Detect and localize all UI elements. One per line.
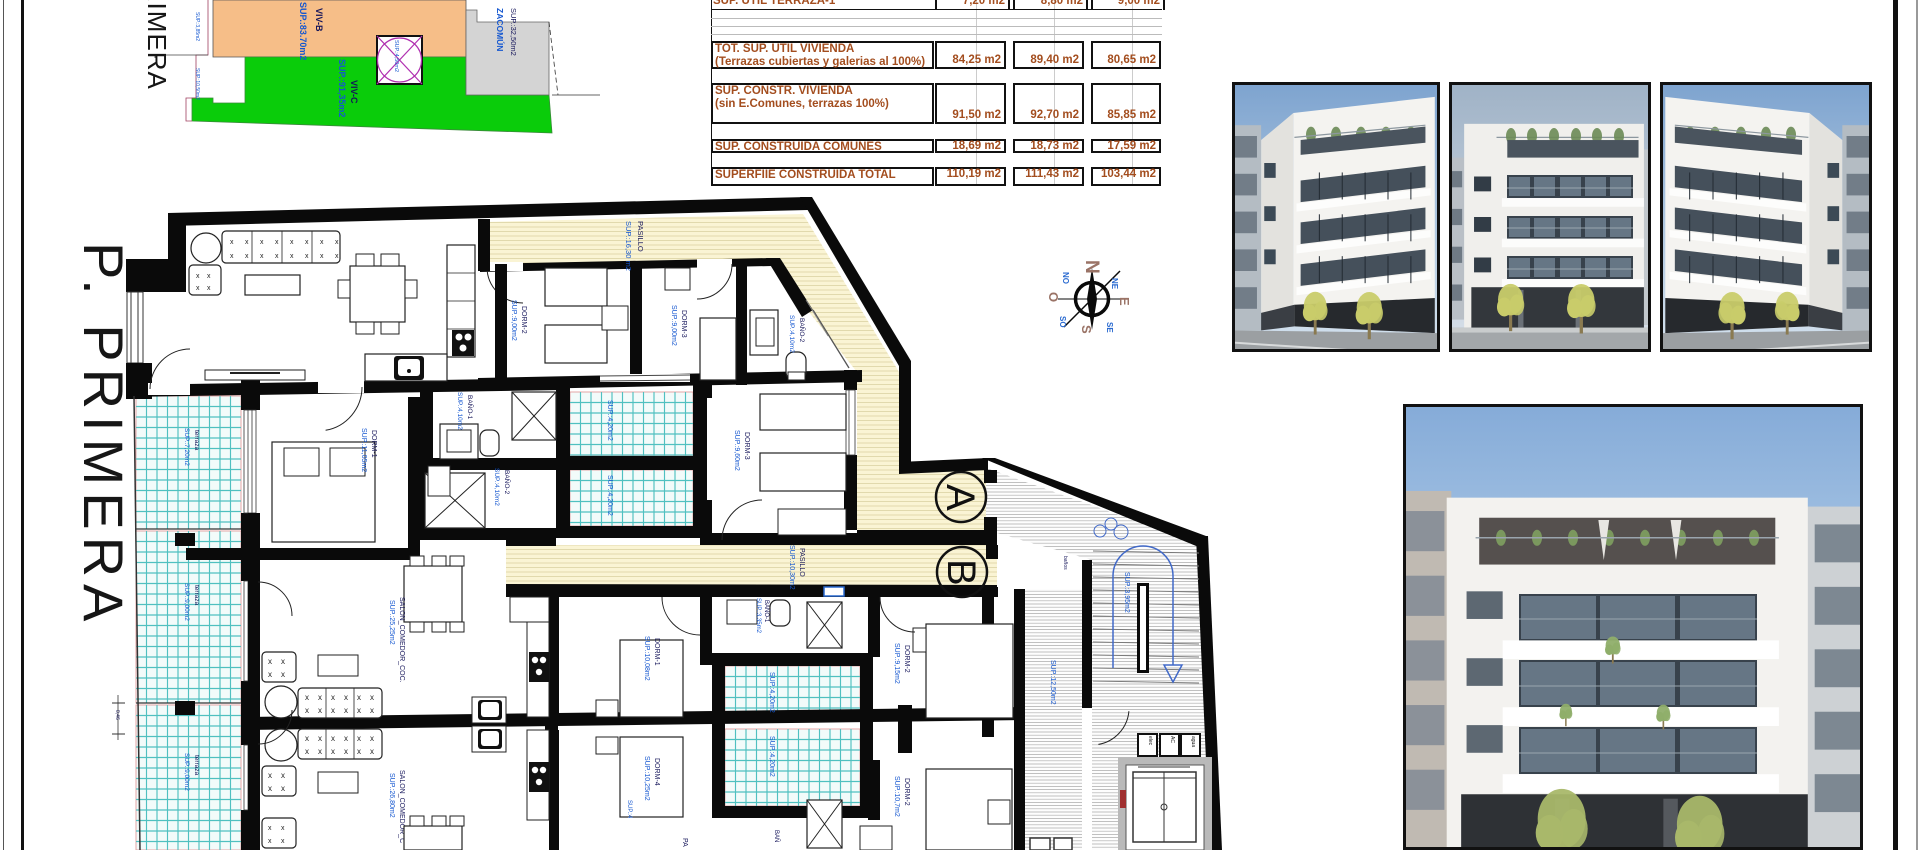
svg-text:SUP.:4,10m2: SUP.:4,10m2 <box>788 315 795 353</box>
svg-text:N: N <box>1081 260 1102 274</box>
svg-text:x: x <box>320 239 324 246</box>
svg-text:SUP.:4: SUP.:4 <box>626 800 632 819</box>
svg-text:x: x <box>275 253 279 260</box>
svg-text:x: x <box>260 253 264 260</box>
svg-text:x: x <box>290 253 294 260</box>
svg-text:x: x <box>207 273 211 280</box>
svg-text:x: x <box>281 825 285 832</box>
svg-text:ZACOMÚN: ZACOMÚN <box>495 8 506 51</box>
svg-text:O: O <box>1046 292 1061 302</box>
svg-text:DORM-2: DORM-2 <box>520 306 527 334</box>
svg-text:SUP.:91,35m2: SUP.:91,35m2 <box>337 59 347 117</box>
svg-text:BAÑO-1: BAÑO-1 <box>763 600 770 623</box>
svg-text:PASILLO: PASILLO <box>636 221 645 252</box>
svg-text:x: x <box>357 747 361 756</box>
svg-text:x: x <box>268 670 272 679</box>
svg-text:NO: NO <box>1061 272 1070 284</box>
svg-text:elec: elec <box>1147 736 1153 746</box>
svg-text:x: x <box>230 253 234 260</box>
svg-text:x: x <box>344 747 348 756</box>
svg-text:SUP.:9,60m2: SUP.:9,60m2 <box>733 430 740 471</box>
svg-text:SUP.:9,15m2: SUP.:9,15m2 <box>893 643 900 684</box>
svg-text:x: x <box>331 734 335 743</box>
svg-text:terraza: terraza <box>193 585 200 606</box>
svg-text:VIV-B: VIV-B <box>314 8 324 32</box>
svg-text:BAÑO-2: BAÑO-2 <box>503 470 512 495</box>
svg-text:x: x <box>268 825 272 832</box>
svg-text:SUP.:32,50m2: SUP.:32,50m2 <box>509 8 518 56</box>
svg-text:x: x <box>305 706 309 715</box>
svg-text:SUP.:10,7m2: SUP.:10,7m2 <box>893 776 900 817</box>
svg-text:x: x <box>370 747 374 756</box>
svg-text:SUP.:16,30 m2: SUP.:16,30 m2 <box>624 221 633 271</box>
svg-text:baños: baños <box>1062 556 1068 570</box>
svg-text:x: x <box>305 693 309 702</box>
svg-text:DORM-3: DORM-3 <box>743 432 750 460</box>
svg-text:NE: NE <box>1110 278 1119 290</box>
svg-text:x: x <box>335 253 339 260</box>
svg-text:SUP.:10,50m2: SUP.:10,50m2 <box>194 68 200 100</box>
svg-text:S: S <box>1079 325 1094 334</box>
svg-text:VIV-C: VIV-C <box>349 80 359 104</box>
svg-text:terraza: terraza <box>193 430 200 451</box>
svg-text:SUP.:83.70m2: SUP.:83.70m2 <box>298 2 308 60</box>
svg-text:SUP.:9,00m2: SUP.:9,00m2 <box>183 753 190 791</box>
svg-text:SUP.:3,35m2: SUP.:3,35m2 <box>755 598 761 634</box>
svg-text:x: x <box>318 747 322 756</box>
svg-text:x: x <box>245 253 249 260</box>
svg-text:SUP.:12,50m2: SUP.:12,50m2 <box>1049 660 1056 705</box>
svg-text:x: x <box>260 239 264 246</box>
svg-text:x: x <box>335 239 339 246</box>
svg-text:agua: agua <box>1190 736 1196 747</box>
svg-text:SUP.:3,85m2: SUP.:3,85m2 <box>194 12 200 41</box>
svg-text:x: x <box>207 285 211 292</box>
svg-text:DORM-1: DORM-1 <box>653 638 660 666</box>
svg-text:DORM-2: DORM-2 <box>903 778 910 806</box>
svg-text:x: x <box>370 734 374 743</box>
svg-text:x: x <box>268 838 272 845</box>
svg-text:PA: PA <box>681 838 688 847</box>
svg-text:0,46: 0,46 <box>114 710 120 720</box>
svg-text:SUP.:4,20m2: SUP.:4,20m2 <box>768 736 775 777</box>
svg-text:x: x <box>318 693 322 702</box>
svg-text:SUP.:4,50m2: SUP.:4,50m2 <box>393 40 399 72</box>
svg-text:x: x <box>290 239 294 246</box>
svg-text:DORM-2: DORM-2 <box>903 645 910 673</box>
svg-text:SUP.:10,08m2: SUP.:10,08m2 <box>643 636 650 681</box>
svg-text:SUP.:9,00m2: SUP.:9,00m2 <box>510 300 517 341</box>
svg-text:SUP.:3,95m2: SUP.:3,95m2 <box>1123 572 1130 613</box>
svg-text:SALON_COMEDOR_COC.: SALON_COMEDOR_COC. <box>398 597 405 683</box>
svg-text:x: x <box>245 239 249 246</box>
svg-text:SUP.:4,20m2: SUP.:4,20m2 <box>606 400 613 441</box>
svg-text:x: x <box>281 784 285 793</box>
svg-text:terraza: terraza <box>193 755 200 776</box>
svg-text:x: x <box>196 285 200 292</box>
svg-text:SUP.:4,10m2: SUP.:4,10m2 <box>493 468 500 506</box>
svg-text:A: A <box>938 484 982 511</box>
svg-text:PASILLO: PASILLO <box>798 548 805 577</box>
svg-text:SUP.:9,00m2: SUP.:9,00m2 <box>670 305 677 346</box>
svg-text:x: x <box>344 706 348 715</box>
svg-text:E: E <box>1117 297 1132 306</box>
svg-text:x: x <box>320 253 324 260</box>
svg-text:x: x <box>318 706 322 715</box>
svg-text:SUP.:25,25m2: SUP.:25,25m2 <box>388 600 395 645</box>
svg-text:x: x <box>305 253 309 260</box>
svg-text:x: x <box>370 693 374 702</box>
svg-text:x: x <box>357 706 361 715</box>
svg-text:x: x <box>281 838 285 845</box>
svg-text:x: x <box>318 734 322 743</box>
svg-text:x: x <box>331 693 335 702</box>
svg-text:BAÑO-1: BAÑO-1 <box>466 395 475 420</box>
svg-text:SUP.:4,20m2: SUP.:4,20m2 <box>768 672 775 713</box>
svg-text:DORM-1: DORM-1 <box>370 430 377 458</box>
svg-text:SUP.:7,20m2: SUP.:7,20m2 <box>183 428 190 466</box>
svg-text:x: x <box>268 784 272 793</box>
svg-text:SUP.:10,25m2: SUP.:10,25m2 <box>643 756 650 801</box>
svg-text:x: x <box>196 273 200 280</box>
svg-text:SO: SO <box>1058 316 1067 328</box>
svg-text:x: x <box>281 657 285 666</box>
svg-text:x: x <box>344 693 348 702</box>
svg-text:x: x <box>357 734 361 743</box>
svg-text:DORM-3: DORM-3 <box>680 310 687 338</box>
svg-text:SUP.:9,00m2: SUP.:9,00m2 <box>183 583 190 621</box>
svg-text:SUP.:4,20m2: SUP.:4,20m2 <box>606 475 613 516</box>
svg-text:SUP.:10,30m2: SUP.:10,30m2 <box>788 545 795 590</box>
svg-text:BAÑO-2: BAÑO-2 <box>798 318 807 343</box>
svg-text:x: x <box>281 670 285 679</box>
svg-text:AC: AC <box>1169 736 1175 743</box>
svg-text:BAÑ: BAÑ <box>773 830 780 842</box>
svg-text:x: x <box>370 706 374 715</box>
svg-text:x: x <box>268 771 272 780</box>
svg-text:SUP.:11,05m2: SUP.:11,05m2 <box>360 428 367 472</box>
svg-text:x: x <box>305 734 309 743</box>
svg-text:SUP.:4,10m2: SUP.:4,10m2 <box>456 392 463 430</box>
svg-text:x: x <box>230 239 234 246</box>
svg-text:P. PRIMERA: P. PRIMERA <box>142 0 172 90</box>
svg-text:x: x <box>305 239 309 246</box>
svg-text:B: B <box>939 559 983 586</box>
svg-text:SE: SE <box>1105 322 1114 333</box>
svg-text:x: x <box>281 771 285 780</box>
svg-text:SUP.:26,80m2: SUP.:26,80m2 <box>388 773 395 818</box>
svg-text:x: x <box>331 706 335 715</box>
svg-text:DORM-4: DORM-4 <box>653 758 660 786</box>
svg-text:x: x <box>275 239 279 246</box>
svg-text:x: x <box>357 693 361 702</box>
svg-text:x: x <box>305 747 309 756</box>
svg-text:x: x <box>268 657 272 666</box>
svg-text:x: x <box>344 734 348 743</box>
svg-text:x: x <box>331 747 335 756</box>
svg-text:P. PRIMERA: P. PRIMERA <box>72 242 135 628</box>
